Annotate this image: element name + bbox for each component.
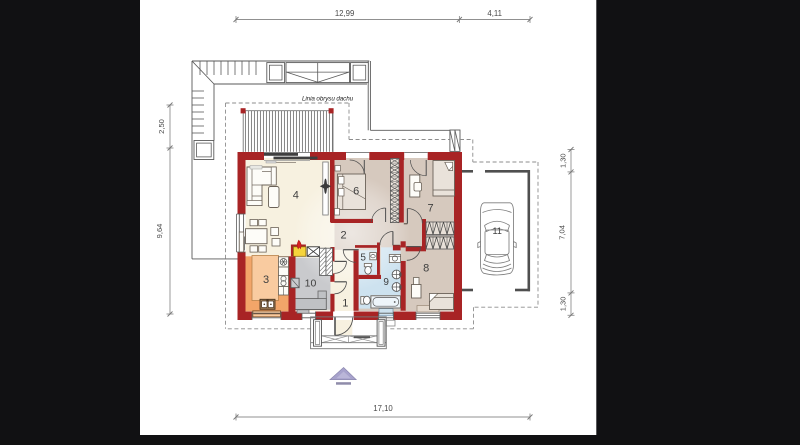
svg-text:2: 2 — [340, 230, 346, 242]
svg-text:2,50: 2,50 — [157, 119, 166, 134]
svg-text:10: 10 — [305, 278, 317, 290]
svg-text:7: 7 — [427, 203, 433, 215]
svg-text:1: 1 — [342, 298, 348, 310]
svg-text:1,30: 1,30 — [559, 153, 568, 168]
svg-text:17,10: 17,10 — [373, 404, 393, 413]
svg-text:3: 3 — [263, 274, 269, 286]
svg-text:1,30: 1,30 — [559, 297, 568, 312]
svg-text:9: 9 — [383, 277, 389, 288]
svg-text:Linia obrysu dachu: Linia obrysu dachu — [302, 95, 354, 102]
svg-text:4: 4 — [293, 190, 299, 202]
svg-text:6: 6 — [353, 186, 359, 198]
svg-text:4,11: 4,11 — [487, 9, 502, 18]
svg-text:9,64: 9,64 — [155, 224, 164, 239]
svg-text:5: 5 — [360, 253, 366, 264]
svg-text:7,04: 7,04 — [558, 225, 567, 240]
svg-text:12,99: 12,99 — [335, 9, 355, 18]
svg-text:11: 11 — [493, 226, 502, 236]
svg-text:8: 8 — [423, 263, 429, 275]
